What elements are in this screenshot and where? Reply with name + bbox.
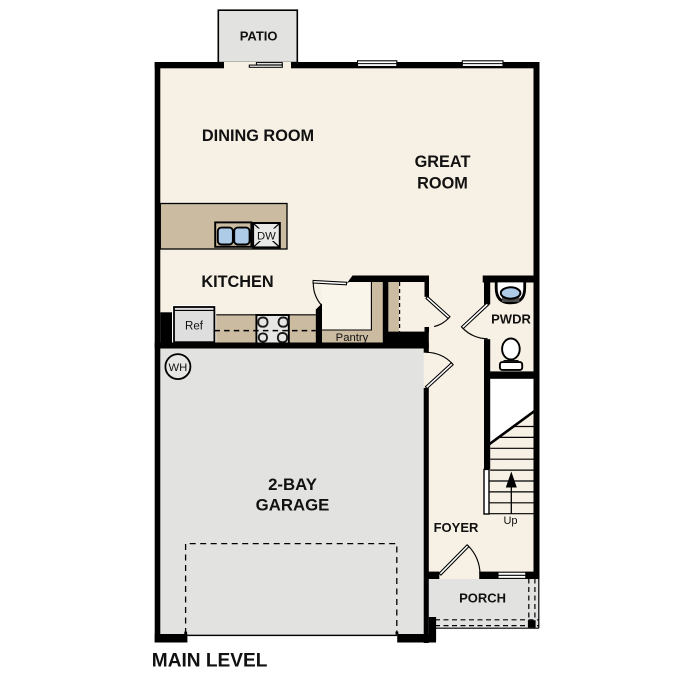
svg-text:GREAT: GREAT	[415, 153, 471, 171]
svg-text:KITCHEN: KITCHEN	[201, 273, 273, 291]
svg-text:Pantry: Pantry	[336, 332, 369, 344]
svg-text:DINING ROOM: DINING ROOM	[202, 127, 314, 145]
svg-text:PATIO: PATIO	[240, 28, 278, 43]
svg-text:PORCH: PORCH	[459, 591, 506, 606]
svg-text:FOYER: FOYER	[434, 520, 479, 535]
svg-text:MAIN LEVEL: MAIN LEVEL	[152, 651, 268, 672]
svg-text:WH: WH	[168, 362, 187, 374]
svg-text:ROOM: ROOM	[417, 175, 468, 193]
svg-text:DW: DW	[257, 231, 276, 243]
svg-text:2-BAY: 2-BAY	[268, 475, 317, 494]
svg-text:Ref: Ref	[185, 320, 204, 332]
svg-text:GARAGE: GARAGE	[256, 496, 330, 515]
svg-text:PWDR: PWDR	[491, 312, 531, 327]
svg-text:Up: Up	[503, 515, 517, 527]
